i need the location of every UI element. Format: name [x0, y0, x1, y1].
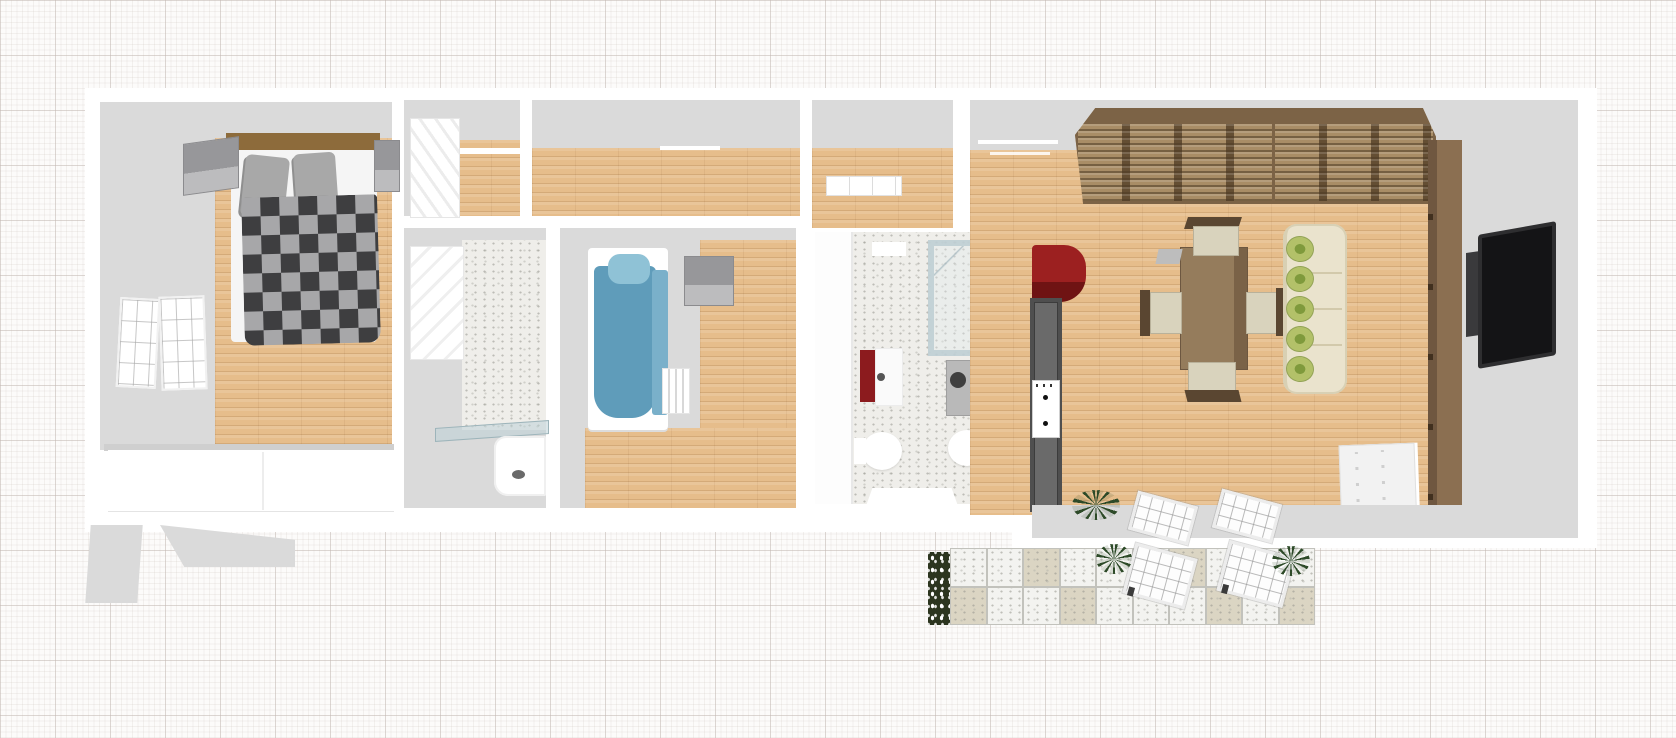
- sofa-pillow[interactable]: [1284, 354, 1315, 384]
- cooktop-burner-2: [1043, 421, 1048, 426]
- cooktop-burner-1: [1043, 395, 1048, 400]
- pergola-slats-b[interactable]: [1272, 108, 1436, 204]
- kids-bed-duvet[interactable]: [594, 266, 656, 418]
- hallway-wall-face: [532, 100, 800, 150]
- patio-tile: [1060, 548, 1097, 587]
- kids-bed-pillow[interactable]: [608, 254, 650, 284]
- palm-plant-1[interactable]: [1096, 544, 1132, 574]
- hallway-floor: [532, 148, 800, 216]
- palm-plant-top[interactable]: [1072, 490, 1120, 520]
- sofa-pillow[interactable]: [1284, 264, 1315, 294]
- bedroom-window-pane-right[interactable]: [158, 295, 207, 391]
- dining-table[interactable]: [1180, 247, 1248, 370]
- bathroom-shower-head-shelf: [872, 242, 906, 256]
- kitchen-glass-shelf-mark-2: [990, 152, 1050, 155]
- kids-floor-wood-bottom: [585, 428, 796, 508]
- kids-radiator: [662, 368, 690, 414]
- chair-top-seat[interactable]: [1193, 226, 1239, 256]
- sofa-pillow[interactable]: [1284, 324, 1315, 354]
- pergola-slats-a[interactable]: [1075, 108, 1278, 204]
- bathroom-window-sill[interactable]: [866, 488, 958, 506]
- patio-flower-border: [928, 552, 950, 625]
- chair-bottom-back: [1185, 390, 1242, 402]
- shower-room-floor-terrazzo: [462, 240, 546, 430]
- patio-tile: [987, 587, 1024, 626]
- toilet[interactable]: [862, 432, 902, 470]
- bathroom-open-door[interactable]: [815, 232, 853, 504]
- toilet-tank: [854, 438, 866, 464]
- tv-wall-unit-handles: [1428, 150, 1433, 510]
- patio-tile: [1023, 548, 1060, 587]
- patio-tile: [950, 587, 987, 626]
- kitchen-cooktop[interactable]: [1032, 380, 1060, 438]
- entry-wall-face: [812, 100, 953, 150]
- sink-faucet: [877, 373, 885, 381]
- chair-left-seat[interactable]: [1150, 292, 1182, 334]
- wall-shadow-left: [85, 525, 142, 603]
- bed-checkered-duvet[interactable]: [241, 194, 381, 346]
- washing-machine-door: [950, 372, 966, 388]
- tv-wall-unit[interactable]: [1428, 140, 1462, 515]
- patio-tile: [1060, 587, 1097, 626]
- floor-plan-canvas: [0, 0, 1676, 738]
- shower-drain: [512, 470, 525, 479]
- closet-dresser[interactable]: [410, 118, 460, 218]
- sofa-pillow[interactable]: [1284, 234, 1315, 264]
- entry-open-door[interactable]: [826, 176, 902, 196]
- bathroom-glass-shower-corner: [934, 246, 964, 276]
- sink-cabinet-maroon[interactable]: [860, 350, 875, 402]
- bedroom-wardrobe-divider: [262, 452, 264, 510]
- shower-room-cabinet[interactable]: [410, 246, 464, 360]
- shower-tray[interactable]: [494, 436, 546, 496]
- chair-shadow: [1155, 249, 1182, 264]
- bedroom-wardrobe[interactable]: [108, 450, 394, 512]
- kitchen-red-cabinet[interactable]: [1032, 245, 1086, 302]
- cooktop-knobs: [1036, 384, 1054, 387]
- kitchen-glass-shelf-mark-1: [978, 140, 1058, 144]
- sofa-pillow[interactable]: [1284, 294, 1315, 324]
- nightstand-left[interactable]: [183, 136, 239, 196]
- wall-tv[interactable]: [1478, 221, 1556, 369]
- chair-right-seat[interactable]: [1246, 292, 1278, 334]
- nightstand-right[interactable]: [374, 140, 400, 192]
- kids-nightstand-cube[interactable]: [684, 256, 734, 306]
- patio-tile: [987, 548, 1024, 587]
- palm-plant-2[interactable]: [1272, 546, 1310, 576]
- patio-tile: [1023, 587, 1060, 626]
- hallway-door-top-mark: [660, 146, 720, 150]
- patio-tile: [950, 548, 987, 587]
- chair-left-back: [1140, 290, 1150, 336]
- bedroom-window-pane-left[interactable]: [116, 297, 161, 389]
- sofa-pillows: [1286, 236, 1316, 386]
